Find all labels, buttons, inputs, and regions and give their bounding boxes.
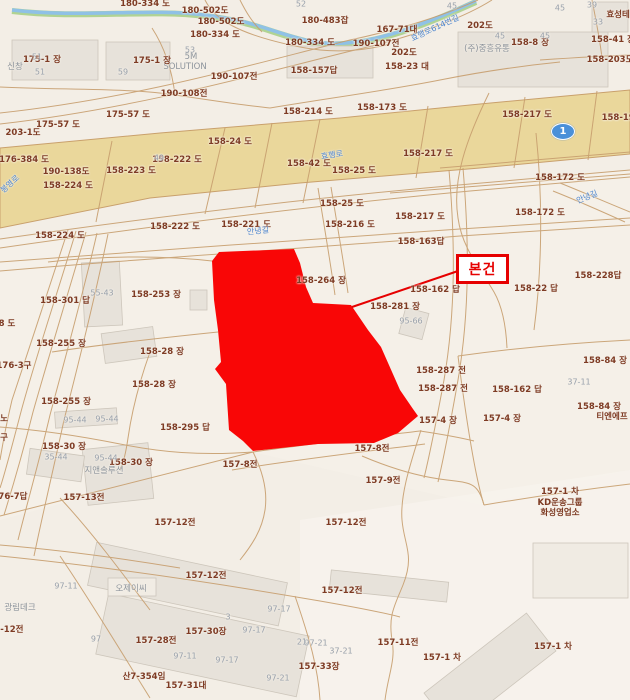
map-label: 97-21: [304, 639, 327, 648]
map-label: 45: [447, 2, 457, 11]
map-label: 안녕길: [575, 188, 600, 206]
map-label: 175-57 도: [106, 108, 150, 120]
map-label: 158-25 도: [332, 164, 376, 176]
map-label: 45: [540, 32, 550, 41]
map-label: 175-57 도: [36, 118, 80, 130]
map-label: 구: [0, 431, 8, 443]
map-label: 157-8전: [354, 442, 389, 454]
map-label: 190-138도: [43, 165, 90, 177]
map-label: 175-1 장: [133, 54, 171, 66]
map-label: 97-17: [242, 626, 265, 635]
map-label: 176-3구: [0, 359, 32, 371]
map-label: 157-13전: [64, 491, 105, 503]
map-label: 180-334 도: [120, 0, 170, 9]
map-label: 158-214 도: [283, 105, 333, 117]
map-label: 봉영로: [0, 173, 22, 196]
map-label: 157-8전: [222, 458, 257, 470]
map-label: 95-44: [94, 454, 117, 463]
map-label: 158-216 도: [325, 218, 375, 230]
map-label: 오제이씨: [115, 582, 146, 594]
map-label: 158-30 장: [42, 440, 86, 452]
route-number: 1: [560, 127, 567, 137]
map-label: 180-502도: [198, 15, 245, 27]
map-label: 158-203도: [587, 53, 630, 65]
map-label: 97-11: [54, 582, 77, 591]
map-label: 3: [225, 613, 230, 622]
map-label: 97-11: [173, 652, 196, 661]
map-label: 158-162 답: [492, 383, 542, 395]
map-label: 190-107전: [211, 70, 258, 82]
map-label: 157-9전: [365, 474, 400, 486]
map-label: 157-4 장: [483, 412, 521, 424]
map-label: 45: [495, 32, 505, 41]
map-label: 158-28 장: [132, 378, 176, 390]
map-label: 53: [185, 46, 195, 55]
map-label: 158-191도: [602, 111, 630, 123]
map-label: 158-224 도: [35, 229, 85, 241]
subject-property-callout: 본건: [456, 254, 509, 284]
map-label: 55-43: [90, 289, 113, 298]
map-label: 158-281 장: [370, 300, 420, 312]
map-label: 158-223 도: [106, 164, 156, 176]
map-label: 효행로: [320, 148, 343, 162]
map-label: 157-4 장: [419, 414, 457, 426]
map-label: 광림데크: [4, 601, 35, 613]
map-label: 97-21: [266, 674, 289, 683]
map-label: 158-255 장: [36, 337, 86, 349]
map-label: 49: [154, 154, 164, 163]
map-labels-layer: 180-334 도180-502도180-502도180-334 도180-33…: [0, 0, 630, 700]
map-label: 95-44: [95, 415, 118, 424]
map-label: 202도: [467, 19, 493, 31]
map-label: 158-28 장: [140, 345, 184, 357]
map-label: 52: [296, 0, 306, 9]
map-label: 190-107전: [353, 37, 400, 49]
map-label: 158-22 답: [514, 282, 558, 294]
map-label: 158-162 답: [410, 283, 460, 295]
map-label: 33: [593, 18, 603, 27]
map-label: 157-33장: [299, 660, 340, 672]
route-1-shield: 1: [551, 123, 575, 140]
map-label: 158-163답: [398, 235, 445, 247]
map-label: 158-217 도: [395, 210, 445, 222]
map-label: 39: [587, 1, 597, 10]
map-label: 157-31대: [166, 679, 207, 691]
map-label: 158-287 전: [418, 382, 468, 394]
map-label: 산7-354임: [123, 670, 166, 682]
map-label: 37-21: [329, 647, 352, 656]
map-label: 8 도: [0, 317, 15, 329]
map-label: 158-172 도: [535, 171, 585, 183]
map-label: 158-301 답: [40, 294, 90, 306]
map-label: 158-287 전: [416, 364, 466, 376]
map-label: 176-384 도: [0, 153, 49, 165]
map-label: 지앤솔루션: [84, 464, 123, 476]
map-label: 97-17: [267, 605, 290, 614]
map-label: 35-44: [44, 453, 67, 462]
map-label: 화성영업소: [540, 506, 579, 518]
map-label: 158-172 도: [515, 206, 565, 218]
map-label: 158-255 장: [41, 395, 91, 407]
map-label: 157-12전: [322, 584, 363, 596]
map-label: 97-17: [215, 656, 238, 665]
map-label: 157-1 차: [423, 651, 461, 663]
map-label: 효성테크: [606, 8, 630, 20]
map-label: 158-222 도: [150, 220, 200, 232]
map-label: 157-28전: [136, 634, 177, 646]
map-label: 158-173 도: [357, 101, 407, 113]
map-label: 51: [35, 68, 45, 77]
cadastral-map-canvas[interactable]: 180-334 도180-502도180-502도180-334 도180-33…: [0, 0, 630, 700]
map-label: 158-264 장: [296, 274, 346, 286]
map-label: 158-41 장: [591, 33, 630, 45]
map-label: 158-24 도: [208, 135, 252, 147]
map-label: 51: [32, 53, 42, 62]
map-label: 158-217 도: [502, 108, 552, 120]
map-label: 신창: [7, 60, 23, 72]
map-label: 95-44: [63, 416, 86, 425]
map-label: (주)중흥유통: [464, 42, 510, 54]
map-label: 180-483잡: [302, 14, 349, 26]
map-label: 45: [555, 4, 565, 13]
map-label: 190-108전: [161, 87, 208, 99]
map-label: 180-334 도: [190, 28, 240, 40]
map-label: 157-12전: [186, 569, 227, 581]
map-label: 176-7답: [0, 490, 28, 502]
subject-property-label: 본건: [469, 259, 497, 279]
map-label: 티엔에프: [596, 410, 627, 422]
map-label: 안녕길: [246, 224, 269, 237]
map-label: 157-12전: [0, 623, 23, 635]
map-label: 157-12전: [155, 516, 196, 528]
map-label: 158-84 장: [583, 354, 627, 366]
map-label: 203-1도: [5, 126, 40, 138]
map-label: 95-66: [399, 317, 422, 326]
map-label: 158-228답: [575, 269, 622, 281]
map-label: 21: [297, 638, 307, 647]
map-label: 157-30장: [186, 625, 227, 637]
map-label: 158-23 대: [385, 60, 429, 72]
map-label: 37-11: [567, 378, 590, 387]
map-label: 158-253 장: [131, 288, 181, 300]
map-label: 노: [0, 412, 8, 424]
map-label: 157-12전: [326, 516, 367, 528]
map-label: 158-295 답: [160, 421, 210, 433]
map-label: 158-157답: [291, 64, 338, 76]
map-label: 158-25 도: [320, 197, 364, 209]
map-label: 158-217 도: [403, 147, 453, 159]
map-label: 158-224 도: [43, 179, 93, 191]
map-label: 157-11전: [378, 636, 419, 648]
map-label: 59: [118, 68, 128, 77]
map-label: 157-1 차: [534, 640, 572, 652]
map-label: 97: [91, 635, 101, 644]
map-label: 180-334 도: [285, 36, 335, 48]
